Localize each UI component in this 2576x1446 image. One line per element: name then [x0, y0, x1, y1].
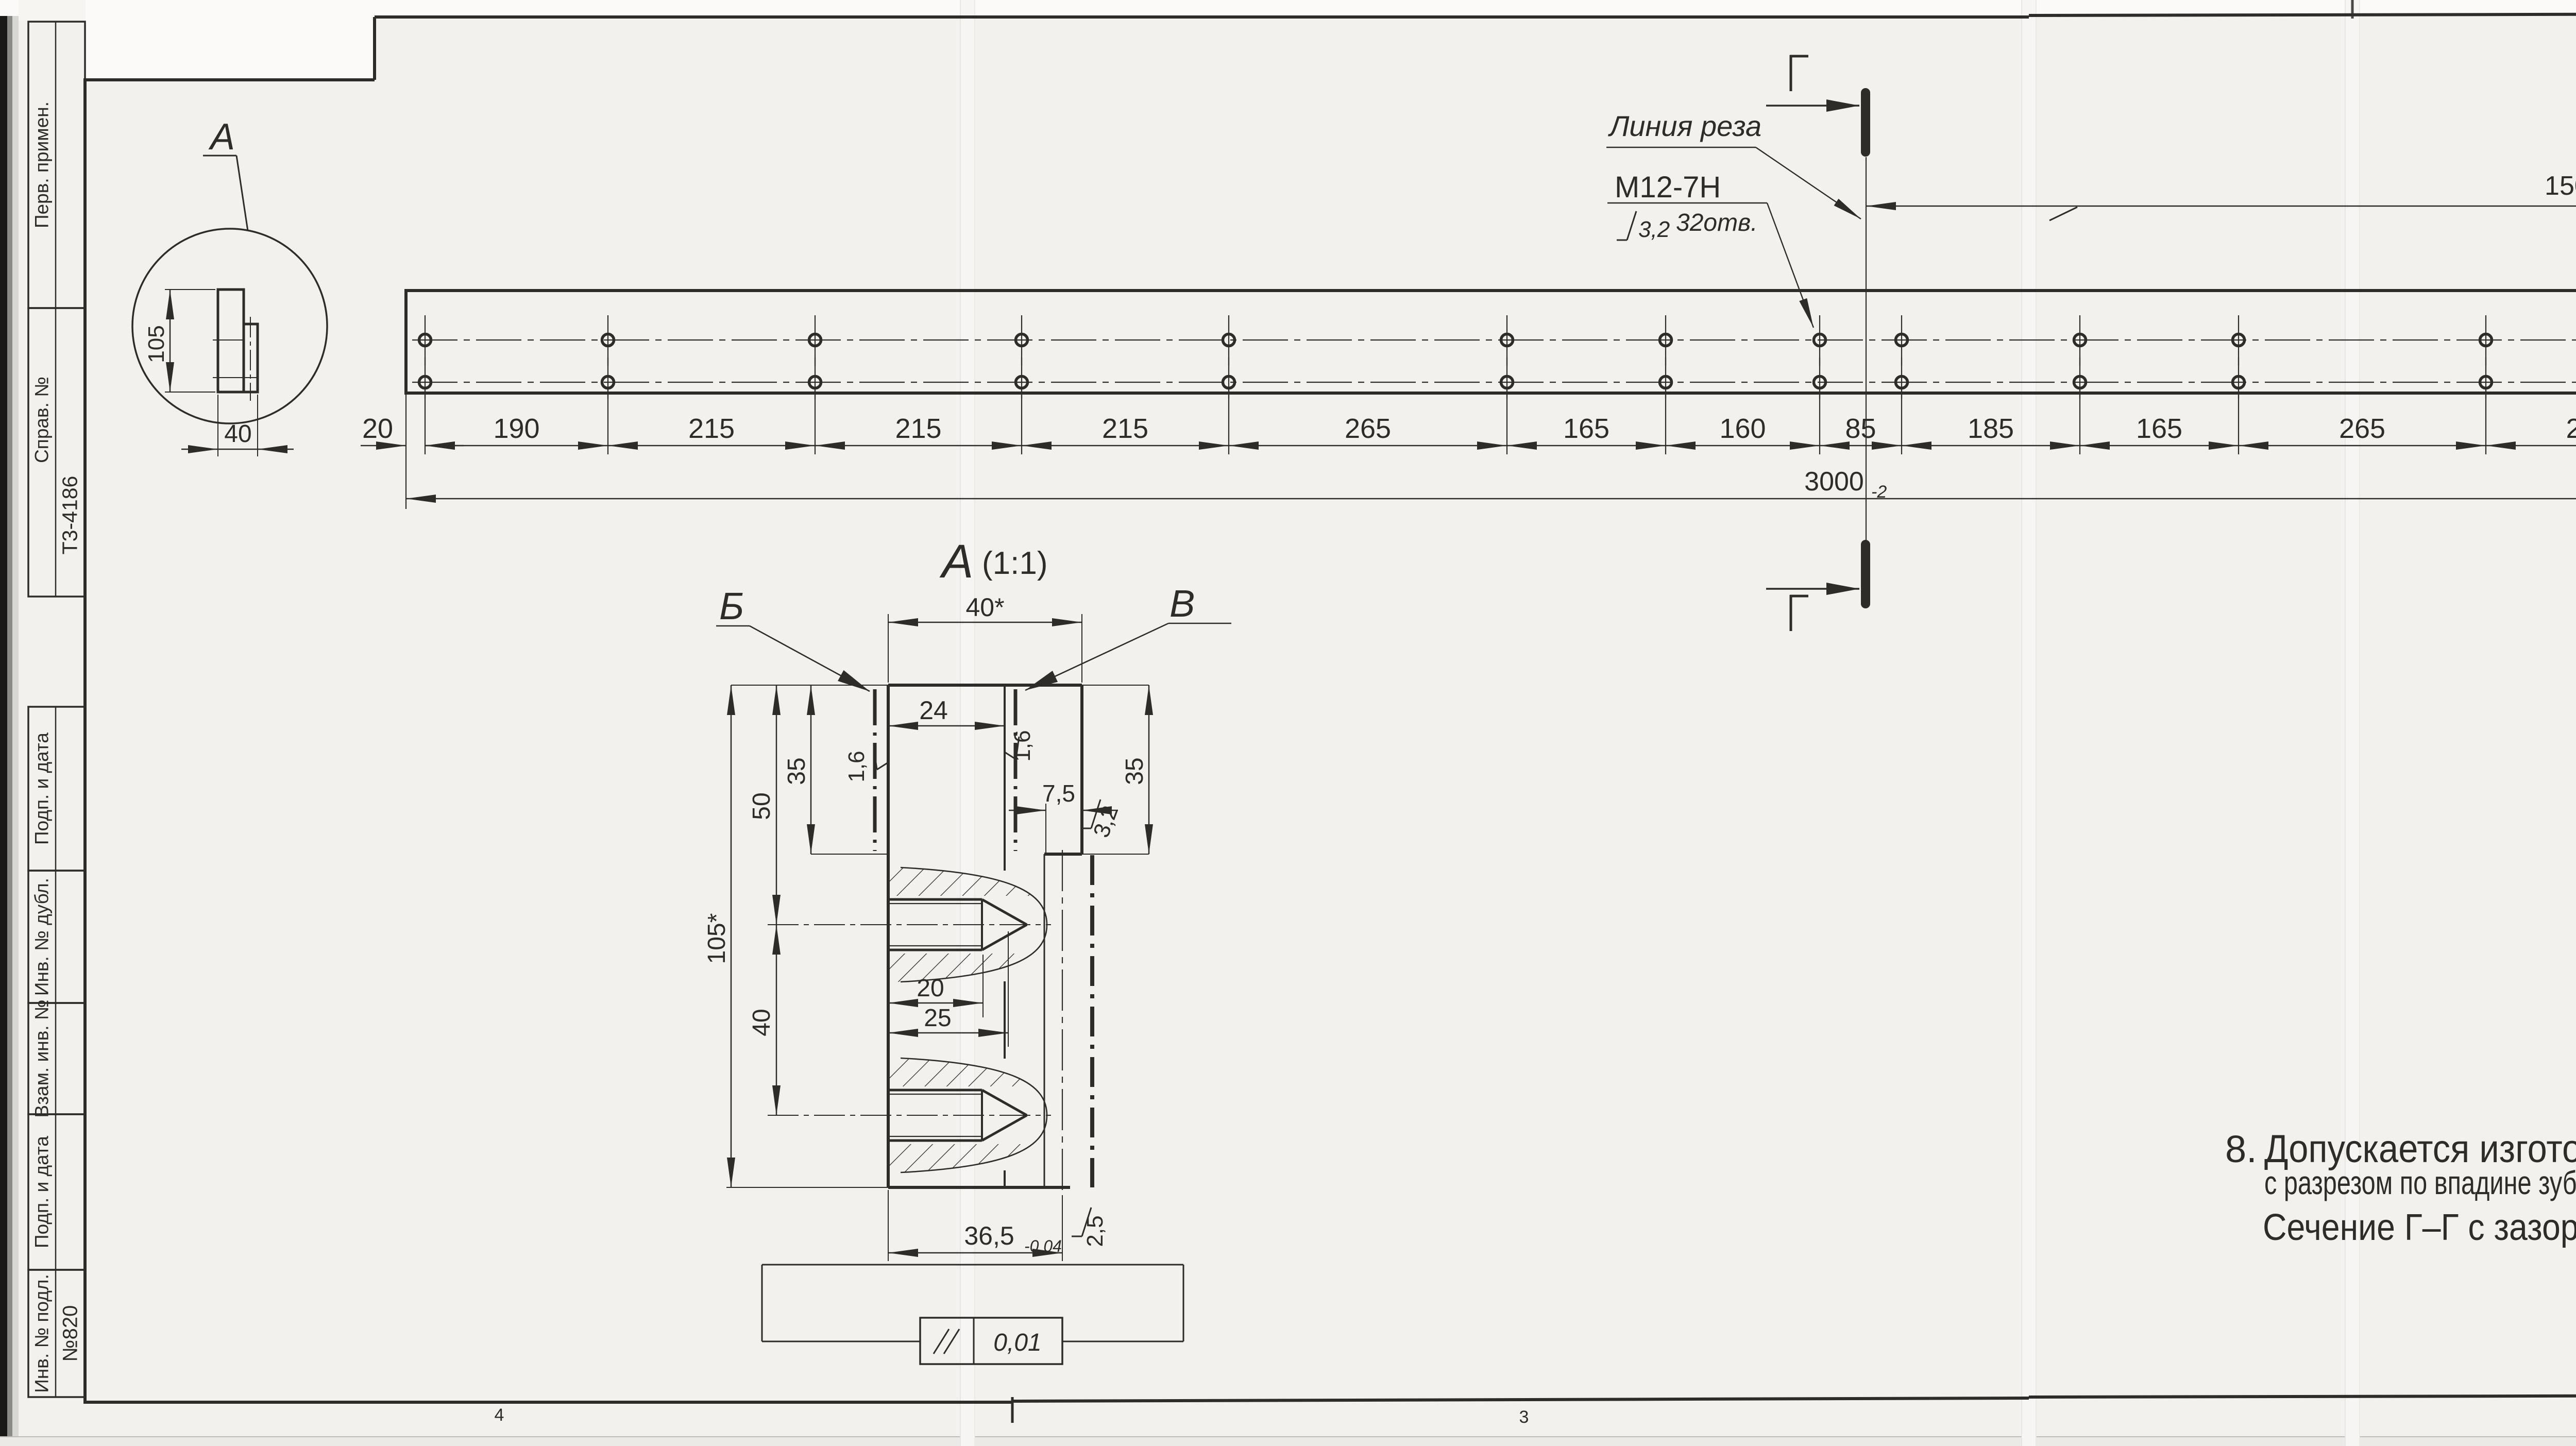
svg-text:185: 185: [1968, 413, 2014, 444]
svg-text:В: В: [1170, 582, 1195, 625]
svg-text:165: 165: [1563, 413, 1609, 444]
svg-text:165: 165: [2136, 413, 2182, 444]
svg-text:40*: 40*: [965, 593, 1004, 622]
svg-text:Сечение Г–Г с зазором между дв: Сечение Г–Г с зазором между двух половин…: [2263, 1207, 2576, 1248]
svg-text:215: 215: [895, 413, 941, 444]
svg-text:160: 160: [1719, 413, 1766, 444]
svg-text:50: 50: [748, 792, 775, 820]
svg-text:85: 85: [1845, 413, 1876, 444]
svg-text:105*: 105*: [703, 913, 731, 964]
svg-text:1500*: 1500*: [2545, 171, 2576, 201]
svg-text:32отв.: 32отв.: [1676, 209, 1757, 236]
svg-text:1,6: 1,6: [844, 751, 869, 782]
svg-text:24: 24: [919, 696, 948, 725]
svg-text:35: 35: [783, 757, 810, 785]
svg-text:с разрезом по впадине зуба под: с разрезом по впадине зуба под углом: [2264, 1164, 2576, 1201]
svg-text:40: 40: [224, 420, 251, 448]
svg-text:105: 105: [144, 325, 169, 363]
svg-text:36,5: 36,5: [964, 1221, 1014, 1250]
svg-text:20: 20: [917, 975, 944, 1002]
svg-text:М12-7Н: М12-7Н: [1615, 171, 1721, 204]
svg-text:265: 265: [2339, 413, 2385, 444]
svg-text:(1:1): (1:1): [982, 546, 1047, 581]
svg-text:-2: -2: [1871, 482, 1887, 502]
svg-text:190: 190: [493, 413, 539, 444]
svg-text:215: 215: [688, 413, 735, 444]
svg-text:Подп. и дата: Подп. и дата: [31, 733, 53, 845]
svg-text:Т3-4186: Т3-4186: [58, 476, 82, 555]
svg-text:7,5: 7,5: [1042, 780, 1075, 807]
svg-text:3: 3: [1519, 1407, 1529, 1427]
svg-text:Инв. № подл.: Инв. № подл.: [31, 1274, 53, 1392]
svg-text:Б: Б: [719, 585, 744, 627]
svg-text:Подп. и дата: Подп. и дата: [31, 1136, 53, 1248]
svg-text:40: 40: [748, 1009, 775, 1036]
svg-text:215: 215: [2566, 413, 2576, 444]
svg-text:Инв. № дубл.: Инв. № дубл.: [31, 878, 53, 996]
svg-text:35: 35: [1121, 757, 1148, 785]
svg-text:А: А: [208, 116, 235, 158]
svg-text:265: 265: [1345, 413, 1391, 444]
svg-text:-0,04: -0,04: [1024, 1237, 1062, 1255]
svg-text:1,6: 1,6: [1010, 730, 1035, 761]
svg-text:Перв. примен.: Перв. примен.: [31, 101, 53, 228]
svg-text:2,5: 2,5: [1082, 1215, 1108, 1247]
svg-text:20: 20: [362, 413, 393, 444]
svg-text:А: А: [939, 535, 973, 588]
svg-text:3,2: 3,2: [1638, 217, 1670, 242]
svg-text:3000: 3000: [1804, 467, 1864, 497]
svg-text:Справ. №: Справ. №: [31, 377, 53, 463]
svg-text:8.: 8.: [2225, 1128, 2257, 1170]
svg-text:0,01: 0,01: [993, 1329, 1041, 1356]
svg-text:215: 215: [1102, 413, 1148, 444]
svg-text:Взам. инв. №: Взам. инв. №: [31, 999, 53, 1117]
svg-text:Линия реза: Линия реза: [1608, 110, 1761, 142]
svg-text:4: 4: [495, 1405, 504, 1425]
svg-text:№820: №820: [59, 1305, 82, 1362]
svg-text:25: 25: [924, 1005, 951, 1032]
